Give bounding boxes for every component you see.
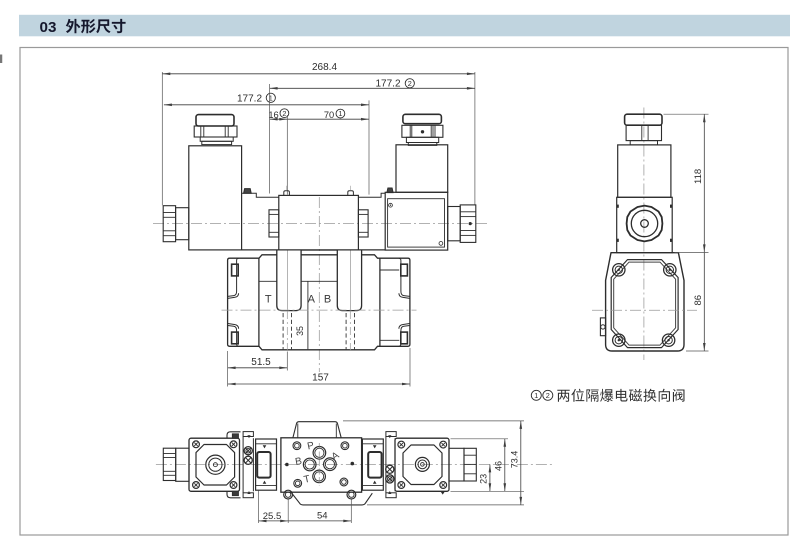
svg-text:T: T xyxy=(303,474,311,486)
svg-text:157: 157 xyxy=(312,372,329,383)
svg-text:86: 86 xyxy=(693,295,704,306)
svg-text:1: 1 xyxy=(338,109,342,118)
svg-text:P: P xyxy=(306,440,315,452)
svg-text:1: 1 xyxy=(534,391,538,400)
svg-text:70: 70 xyxy=(324,110,334,120)
svg-text:268.4: 268.4 xyxy=(312,62,337,73)
svg-text:51.5: 51.5 xyxy=(251,357,271,368)
svg-text:A: A xyxy=(330,450,342,463)
svg-text:2: 2 xyxy=(282,109,286,118)
svg-text:B: B xyxy=(324,293,331,305)
svg-text:46: 46 xyxy=(493,461,503,471)
svg-text:25.5: 25.5 xyxy=(263,511,282,522)
svg-text:54: 54 xyxy=(317,511,328,522)
svg-text:03: 03 xyxy=(40,19,57,36)
svg-text:T: T xyxy=(265,293,272,305)
svg-text:73.4: 73.4 xyxy=(509,451,519,469)
svg-text:35: 35 xyxy=(295,326,305,336)
svg-text:177.2: 177.2 xyxy=(237,93,262,104)
svg-text:118: 118 xyxy=(693,169,704,184)
svg-text:23: 23 xyxy=(478,474,488,484)
svg-text:177.2: 177.2 xyxy=(375,79,400,90)
svg-text:B: B xyxy=(294,456,303,468)
svg-text:A: A xyxy=(308,293,316,305)
svg-text:2: 2 xyxy=(408,79,412,88)
svg-text:2: 2 xyxy=(546,391,550,400)
